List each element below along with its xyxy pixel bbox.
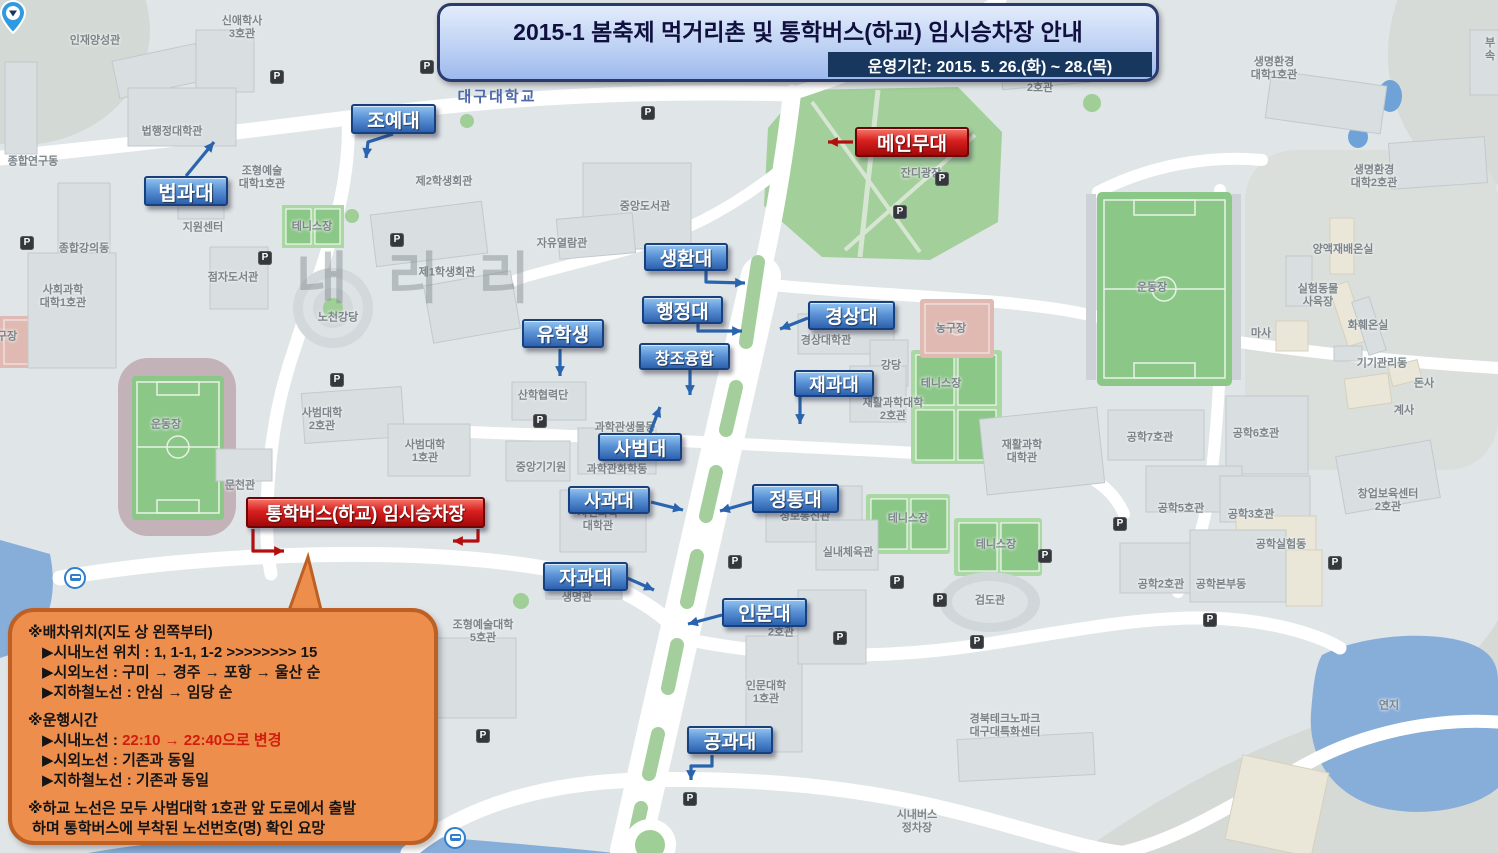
campus-map-page: 내 리 리 대구대학교 인재양성관신애학사 3호관조형예술대학 2호관종합연구동… xyxy=(0,0,1498,853)
map-pin-icon[interactable] xyxy=(0,0,26,34)
page-title: 2015-1 봄축제 먹거리촌 및 통학버스(하교) 임시승차장 안내 xyxy=(440,13,1156,47)
college-callout[interactable]: 자과대 xyxy=(543,562,628,591)
blue-arrowhead xyxy=(795,414,805,424)
notice-speech-bubble: ※배차위치(지도 상 왼쪽부터)▶시내노선 위치 : 1, 1-1, 1-2 >… xyxy=(8,608,438,845)
operation-period: 운영기간: 2015. 5. 26.(화) ~ 28.(목) xyxy=(828,52,1152,77)
red-pointer-arrow xyxy=(253,529,284,551)
notice-line: ※하교 노선은 모두 사범대학 1호관 앞 도로에서 출발 xyxy=(28,799,420,819)
college-callout[interactable]: 생환대 xyxy=(644,243,728,271)
notice-line: ※운행시간 xyxy=(28,711,420,731)
college-callout[interactable]: 공과대 xyxy=(687,726,773,754)
notice-line: ▶시내노선 : 22:10 → 22:40으로 변경 xyxy=(28,731,420,751)
title-banner: 2015-1 봄축제 먹거리촌 및 통학버스(하교) 임시승차장 안내 운영기간… xyxy=(437,3,1159,82)
blue-arrowhead xyxy=(685,385,695,395)
college-callout[interactable]: 경상대 xyxy=(808,301,895,330)
notice-line: ▶시내노선 위치 : 1, 1-1, 1-2 >>>>>>>> 15 xyxy=(28,643,420,663)
notice-line: ▶지하철노선 : 기존과 동일 xyxy=(28,771,420,791)
highlight-callout[interactable]: 메인무대 xyxy=(855,127,969,157)
college-callout[interactable]: 행정대 xyxy=(642,296,723,324)
blue-pointer-arrow xyxy=(691,755,712,780)
notice-line: ▶시외노선 : 구미 → 경주 → 포항 → 울산 순 xyxy=(28,663,420,683)
college-callout[interactable]: 사범대 xyxy=(598,433,682,461)
blue-arrowhead xyxy=(735,278,745,288)
red-arrowhead xyxy=(274,546,284,556)
red-arrowhead xyxy=(828,137,838,147)
college-callout[interactable]: 창조융합 xyxy=(639,343,730,370)
blue-arrowhead xyxy=(732,326,742,336)
highlight-callout[interactable]: 통학버스(하교) 임시승차장 xyxy=(246,497,485,528)
notice-line: ※배차위치(지도 상 왼쪽부터) xyxy=(28,623,420,643)
college-callout[interactable]: 유학생 xyxy=(522,319,604,348)
college-callout[interactable]: 조예대 xyxy=(351,104,436,134)
blue-arrowhead xyxy=(555,366,565,376)
changed-time-text: 22:10 → 22:40으로 변경 xyxy=(122,732,281,749)
red-arrowhead xyxy=(453,536,463,546)
notice-line: ▶시외노선 : 기존과 동일 xyxy=(28,751,420,771)
college-callout[interactable]: 정통대 xyxy=(752,484,839,513)
college-callout[interactable]: 인문대 xyxy=(722,598,807,627)
college-callout[interactable]: 법과대 xyxy=(144,176,228,206)
notice-line: ▶지하철노선 : 안심 → 임당 순 xyxy=(28,683,420,703)
college-callout[interactable]: 사과대 xyxy=(568,486,650,514)
notice-line: 하며 통학버스에 부착된 노선번호(명) 확인 요망 xyxy=(28,819,420,839)
blue-pointer-arrow xyxy=(366,134,393,158)
college-callout[interactable]: 재과대 xyxy=(794,370,874,397)
blue-arrowhead xyxy=(686,770,696,780)
